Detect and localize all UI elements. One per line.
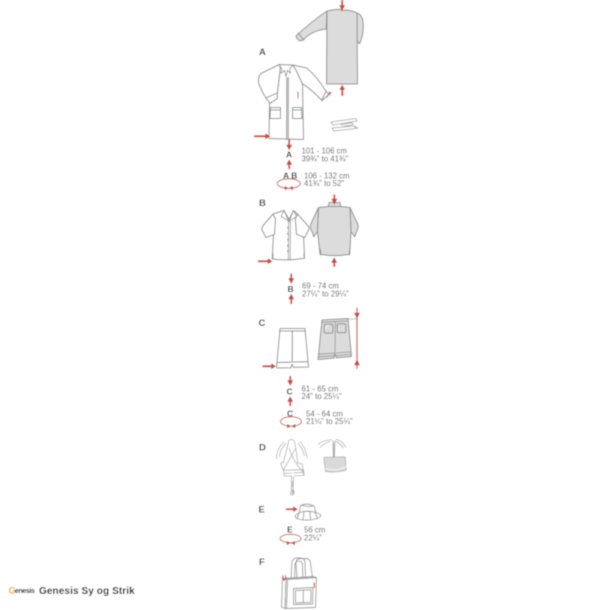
svg-text:A: A <box>286 150 292 160</box>
svg-text:F: F <box>259 557 265 568</box>
svg-text:E: E <box>287 525 293 535</box>
svg-text:C: C <box>287 387 293 397</box>
svg-text:C: C <box>259 318 266 329</box>
svg-text:D: D <box>259 443 266 454</box>
svg-text:24" to 25¼": 24" to 25¼" <box>302 392 342 401</box>
svg-text:B: B <box>288 284 294 294</box>
svg-text:27¼" to 29¼": 27¼" to 29¼" <box>302 290 349 299</box>
svg-text:39¾" to 41¾": 39¾" to 41¾" <box>302 155 349 164</box>
svg-text:E: E <box>259 505 265 516</box>
svg-text:22¼": 22¼" <box>304 534 322 543</box>
svg-text:B: B <box>259 198 266 209</box>
svg-text:41¾" to 52": 41¾" to 52" <box>304 179 344 188</box>
svg-text:21¼" to 25¼": 21¼" to 25¼" <box>306 417 353 426</box>
svg-text:enesis: enesis <box>15 588 35 595</box>
svg-text:A: A <box>259 47 266 58</box>
svg-text:Genesis Sy og Strik: Genesis Sy og Strik <box>39 586 135 597</box>
